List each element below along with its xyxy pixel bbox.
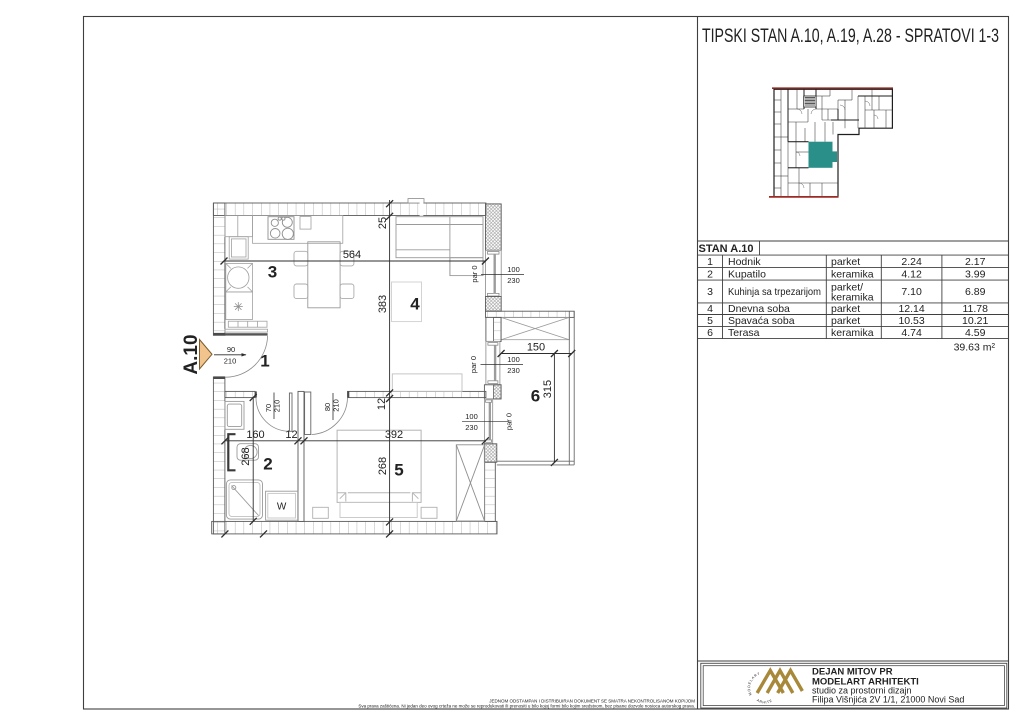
svg-text:Dnevna soba: Dnevna soba xyxy=(728,303,790,315)
svg-text:parket: parket xyxy=(831,303,860,315)
svg-text:100: 100 xyxy=(507,265,520,274)
svg-text:par 0: par 0 xyxy=(470,265,479,282)
svg-text:parket: parket xyxy=(831,315,860,327)
svg-text:3.99: 3.99 xyxy=(965,269,986,281)
svg-text:210: 210 xyxy=(224,357,237,366)
svg-text:268: 268 xyxy=(377,457,389,475)
svg-text:25: 25 xyxy=(377,217,389,229)
svg-text:3: 3 xyxy=(268,263,277,282)
svg-text:230: 230 xyxy=(507,366,520,375)
svg-text:2.24: 2.24 xyxy=(901,256,922,268)
svg-text:12.14: 12.14 xyxy=(898,303,924,315)
svg-text:1: 1 xyxy=(707,256,713,268)
svg-text:230: 230 xyxy=(507,276,520,285)
svg-text:7.10: 7.10 xyxy=(901,286,922,298)
svg-text:par 0: par 0 xyxy=(505,413,514,430)
svg-text:4.59: 4.59 xyxy=(965,327,986,339)
svg-text:12: 12 xyxy=(376,398,388,410)
svg-text:6: 6 xyxy=(707,327,713,339)
svg-text:10.53: 10.53 xyxy=(898,315,924,327)
svg-text:Sva prava zaštićena. Ni jedan: Sva prava zaštićena. Ni jedan deo ovog c… xyxy=(358,704,695,709)
svg-text:230: 230 xyxy=(465,423,478,432)
svg-text:Spavaća soba: Spavaća soba xyxy=(728,315,795,327)
svg-text:Filipa Višnjića 2V 1/1, 21000: Filipa Višnjića 2V 1/1, 21000 Novi Sad xyxy=(812,695,964,705)
svg-text:par 0: par 0 xyxy=(469,356,478,373)
svg-text:383: 383 xyxy=(377,295,389,313)
svg-text:Kuhinja sa trpezarijom: Kuhinja sa trpezarijom xyxy=(728,286,821,298)
svg-text:210: 210 xyxy=(332,399,341,412)
svg-text:100: 100 xyxy=(507,355,520,364)
svg-text:90: 90 xyxy=(227,345,235,354)
svg-text:150: 150 xyxy=(527,341,545,353)
svg-text:5: 5 xyxy=(707,315,713,327)
svg-text:Kupatilo: Kupatilo xyxy=(728,269,766,281)
svg-text:4: 4 xyxy=(410,295,420,314)
svg-text:Hodnik: Hodnik xyxy=(728,256,761,268)
svg-text:6: 6 xyxy=(531,387,540,406)
svg-text:11.78: 11.78 xyxy=(962,303,988,315)
svg-text:10.21: 10.21 xyxy=(962,315,988,327)
svg-text:6.89: 6.89 xyxy=(965,286,986,298)
svg-text:100: 100 xyxy=(465,412,478,421)
svg-text:3: 3 xyxy=(707,286,713,298)
svg-text:TIPSKI STAN A.10, A.19, A.28 -: TIPSKI STAN A.10, A.19, A.28 - SPRATOVI … xyxy=(702,26,999,47)
svg-text:keramika: keramika xyxy=(831,327,874,339)
svg-text:W: W xyxy=(277,502,287,513)
svg-text:5: 5 xyxy=(394,461,403,480)
svg-text:STAN A.10: STAN A.10 xyxy=(699,243,754,255)
svg-text:564: 564 xyxy=(343,249,361,261)
svg-text:keramika: keramika xyxy=(831,269,874,281)
svg-text:268: 268 xyxy=(240,447,252,465)
svg-text:39.63 m²: 39.63 m² xyxy=(954,342,996,354)
svg-text:315: 315 xyxy=(542,380,554,398)
svg-text:4.74: 4.74 xyxy=(901,327,922,339)
svg-text:4.12: 4.12 xyxy=(901,269,922,281)
svg-text:parket: parket xyxy=(831,256,860,268)
svg-text:392: 392 xyxy=(385,429,403,441)
svg-text:keramika: keramika xyxy=(831,292,874,304)
svg-text:2.17: 2.17 xyxy=(965,256,986,268)
svg-text:A.10: A.10 xyxy=(181,334,202,374)
svg-text:2: 2 xyxy=(707,269,713,281)
svg-text:210: 210 xyxy=(273,400,282,413)
svg-text:1: 1 xyxy=(260,352,269,371)
svg-text:160: 160 xyxy=(246,429,264,441)
svg-text:2: 2 xyxy=(263,455,272,474)
svg-text:4: 4 xyxy=(707,303,713,315)
svg-text:JEDNOM ODSTAMPAN I DISTRIBUIRA: JEDNOM ODSTAMPAN I DISTRIBUIRAN DOKUMENT… xyxy=(489,699,695,704)
svg-text:Terasa: Terasa xyxy=(728,327,760,339)
svg-text:12: 12 xyxy=(285,429,297,441)
